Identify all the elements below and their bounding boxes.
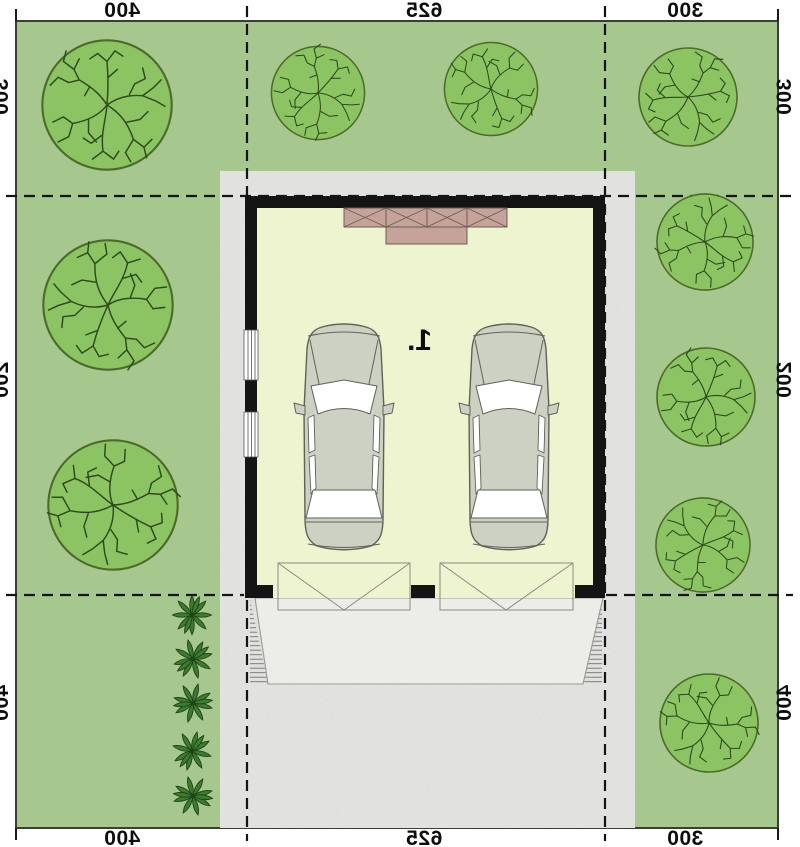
dim-right-top: 300 — [773, 79, 796, 116]
dim-right-middle: 200 — [773, 362, 796, 399]
window-upper — [244, 330, 258, 380]
dim-top-right: 300 — [667, 0, 704, 22]
dim-left-middle: 200 — [0, 362, 13, 399]
garage-door-opening-left — [273, 585, 411, 598]
shrub — [172, 595, 211, 634]
car-left — [294, 324, 394, 550]
site-plan: 1. 400 625 300 400 625 300 300 200 400 — [0, 0, 800, 847]
dim-top-left: 400 — [104, 0, 141, 22]
tree — [42, 40, 171, 169]
site-plan-drawing: 1. 400 625 300 400 625 300 300 200 400 — [0, 0, 800, 847]
window-lower — [244, 412, 258, 457]
dim-right-bottom: 400 — [773, 685, 796, 722]
dim-bottom-right: 300 — [667, 827, 704, 847]
room-number-label: 1. — [407, 324, 432, 357]
dim-bottom-center: 625 — [406, 827, 443, 847]
dim-bottom-left: 400 — [104, 827, 141, 847]
driveway-apron — [250, 598, 603, 684]
dim-top-center: 625 — [406, 0, 443, 22]
dim-left-bottom: 400 — [0, 685, 13, 722]
dim-left-top: 300 — [0, 79, 13, 116]
garage-door-opening-right — [435, 585, 575, 598]
garage: 1. — [244, 196, 605, 610]
car-right — [459, 324, 559, 550]
